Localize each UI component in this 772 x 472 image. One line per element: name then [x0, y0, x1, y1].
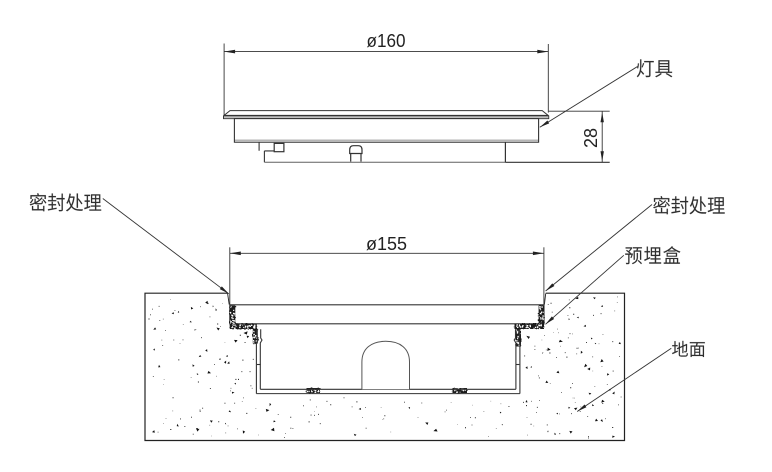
svg-text:28: 28 — [581, 128, 601, 148]
svg-text:ø155: ø155 — [366, 233, 407, 254]
svg-text:ø160: ø160 — [367, 30, 406, 51]
